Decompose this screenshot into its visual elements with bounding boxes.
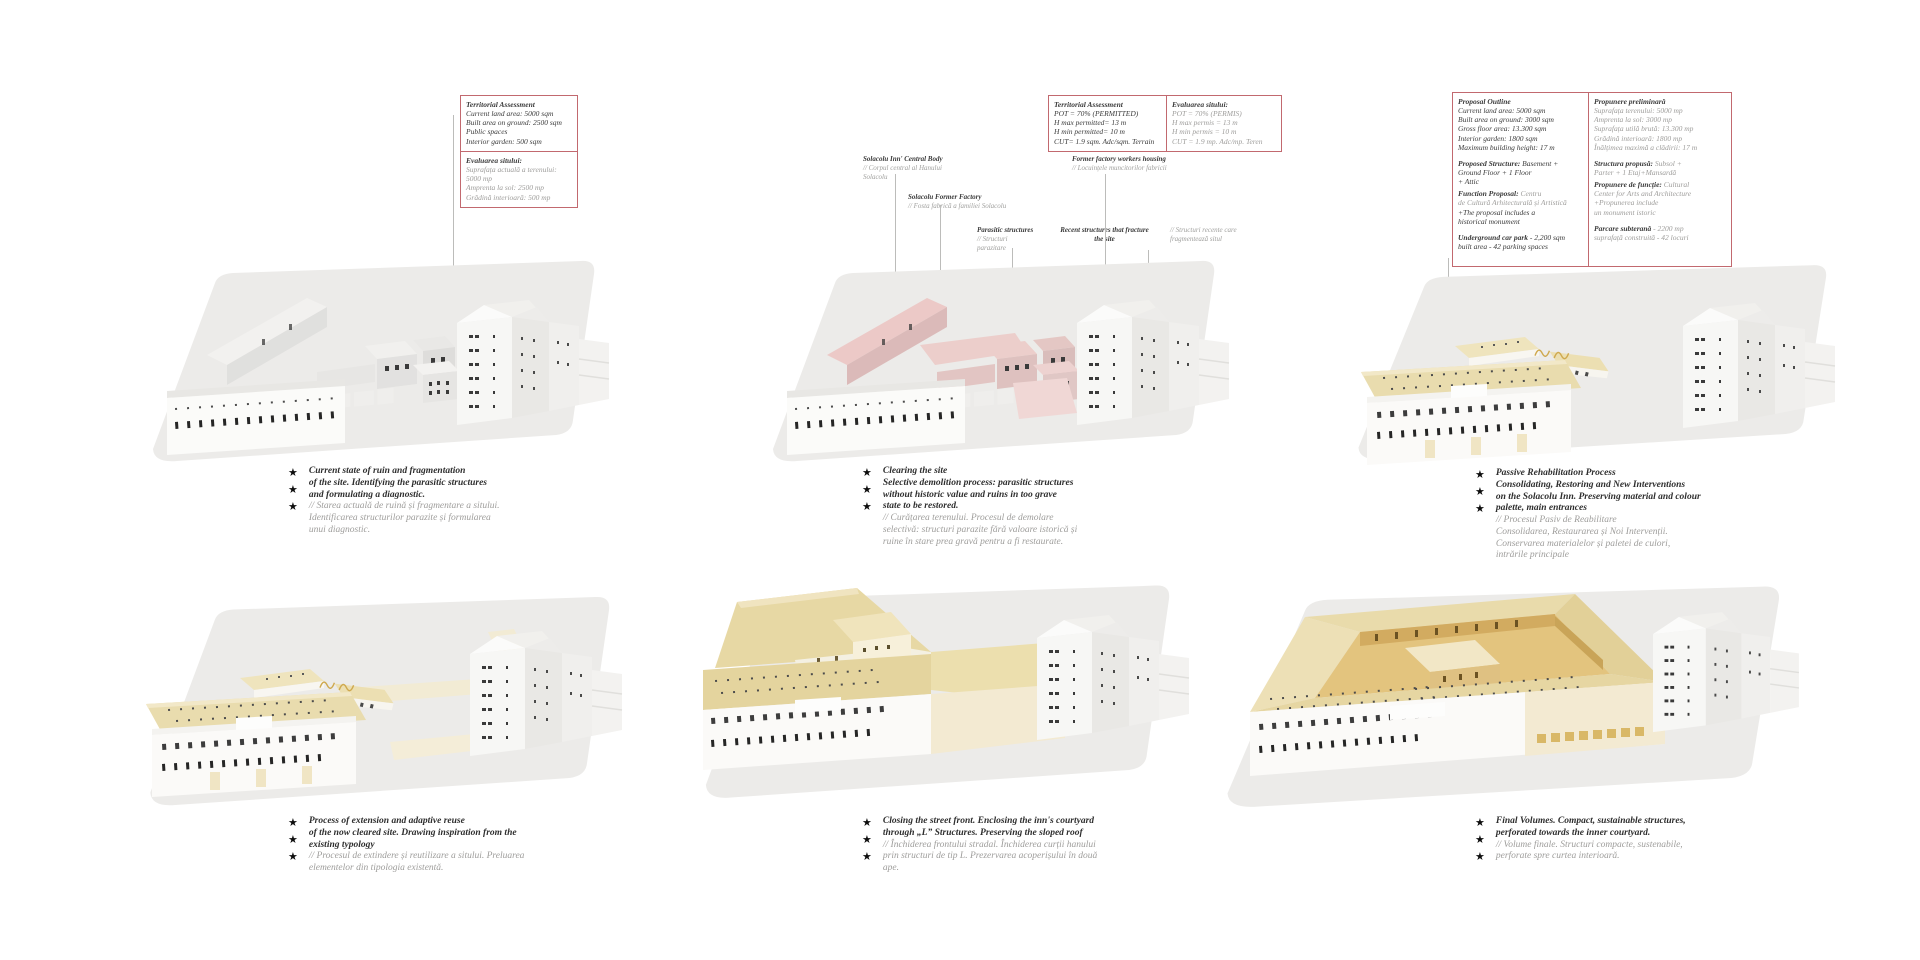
- phase-2-caption: ★ ★ ★ Clearing the site Selective demoli…: [862, 466, 1077, 548]
- star-icon: ★: [1475, 852, 1485, 863]
- caption-romanian: // Volume finale. Structuri compacte, su…: [1496, 840, 1686, 864]
- box-title: Evaluarea sitului:: [1172, 100, 1276, 109]
- box-title: Territorial Assessment: [466, 100, 572, 109]
- box-block: Propunere de funcție: Cultural Center fo…: [1594, 180, 1726, 217]
- star-icon: ★: [288, 852, 298, 863]
- star-bullets: ★ ★ ★: [862, 466, 872, 548]
- box-block: Function Proposal: Centru de Cultură Arh…: [1458, 189, 1586, 226]
- axonometric-model-phase-1-ruins: [95, 235, 635, 485]
- box-title: Evaluarea sitului:: [466, 156, 572, 165]
- star-icon: ★: [862, 468, 872, 479]
- phase-5-caption: ★ ★ ★ Closing the street front. Enclosin…: [862, 816, 1097, 875]
- star-icon: ★: [862, 818, 872, 829]
- caption-romanian: // Starea actuală de ruină și fragmentar…: [309, 501, 500, 536]
- star-icon: ★: [1475, 504, 1485, 515]
- phase-6-caption: ★ ★ ★ Final Volumes. Compact, sustainabl…: [1475, 816, 1686, 863]
- star-icon: ★: [288, 502, 298, 513]
- solacolu-inn-phasing-board: Territorial Assessment Current land area…: [0, 0, 1920, 960]
- star-icon: ★: [288, 835, 298, 846]
- phase-4-caption: ★ ★ ★ Process of extension and adaptive …: [288, 816, 524, 875]
- star-icon: ★: [862, 852, 872, 863]
- star-bullets: ★ ★ ★: [1475, 816, 1485, 863]
- star-icon: ★: [288, 468, 298, 479]
- caption-romanian: // Închiderea frontului stradal. Închide…: [883, 840, 1097, 875]
- star-icon: ★: [1475, 818, 1485, 829]
- site-evaluation-box-ro-2: Evaluarea sitului: POT = 70% (PERMIS) H …: [1166, 95, 1282, 152]
- star-icon: ★: [862, 502, 872, 513]
- caption-romanian: // Procesul de extindere și reutilizare …: [309, 851, 525, 875]
- star-bullets: ★ ★ ★: [862, 816, 872, 875]
- box-body: Current land area: 5000 sqm Built area o…: [466, 109, 572, 146]
- axonometric-model-phase-4-extension: [90, 570, 650, 825]
- star-icon: ★: [1475, 487, 1485, 498]
- callout-central-body: Solacolu Inn' Central Body // Corpul cen…: [863, 155, 968, 182]
- caption-english: Current state of ruin and fragmentation …: [309, 466, 500, 501]
- site-evaluation-box-ro-1: Evaluarea sitului: Suprafața actuală a t…: [460, 151, 578, 208]
- box-title: Propunere preliminară: [1594, 97, 1726, 106]
- box-block: Proposed Structure: Basement + Ground Fl…: [1458, 159, 1586, 186]
- callout-former-factory: Solacolu Former Factory // Fosta fabrică…: [908, 193, 1028, 211]
- star-icon: ★: [1475, 835, 1485, 846]
- box-body: POT = 70% (PERMITTED) H max permitted= 1…: [1054, 109, 1164, 146]
- callout-workers-housing: Former factory workers housing // Locuin…: [1072, 155, 1192, 173]
- box-title: Proposal Outline: [1458, 97, 1586, 106]
- box-body: POT = 70% (PERMIS) H max permis = 13 m H…: [1172, 109, 1276, 146]
- star-icon: ★: [862, 835, 872, 846]
- axonometric-model-phase-6-final-volumes: [1155, 552, 1845, 824]
- territorial-assessment-box-en-1: Territorial Assessment Current land area…: [460, 95, 578, 152]
- star-icon: ★: [288, 485, 298, 496]
- box-title: Territorial Assessment: [1054, 100, 1164, 109]
- caption-romanian: // Curățarea terenului. Procesul de demo…: [883, 513, 1077, 548]
- star-bullets: ★ ★ ★: [288, 816, 298, 875]
- caption-english: Closing the street front. Enclosing the …: [883, 816, 1097, 840]
- box-block: Structura propusă: Subsol + Parter + 1 E…: [1594, 159, 1726, 177]
- axonometric-model-phase-3-rehabilitation: [1305, 240, 1865, 480]
- star-icon: ★: [862, 485, 872, 496]
- box-body: Current land area: 5000 sqm Built area o…: [1458, 106, 1586, 152]
- star-icon: ★: [288, 818, 298, 829]
- phase-1-caption: ★ ★ ★ Current state of ruin and fragment…: [288, 466, 499, 537]
- territorial-assessment-box-en-2: Territorial Assessment POT = 70% (PERMIT…: [1048, 95, 1170, 152]
- caption-english: Passive Rehabilitation Process Consolida…: [1496, 468, 1701, 515]
- box-body: Suprafața terenului: 5000 mp Amprenta la…: [1594, 106, 1726, 152]
- caption-english: Clearing the site Selective demolition p…: [883, 466, 1077, 513]
- star-bullets: ★ ★ ★: [1475, 468, 1485, 562]
- star-icon: ★: [1475, 470, 1485, 481]
- axonometric-model-phase-2-demolition: [715, 235, 1255, 485]
- box-body: Suprafața actuală a terenului: 5000 mp A…: [466, 165, 572, 202]
- phase-3-caption: ★ ★ ★ Passive Rehabilitation Process Con…: [1475, 468, 1701, 562]
- caption-english: Process of extension and adaptive reuse …: [309, 816, 525, 851]
- caption-english: Final Volumes. Compact, sustainable stru…: [1496, 816, 1686, 840]
- star-bullets: ★ ★ ★: [288, 466, 298, 537]
- axonometric-model-phase-5-street-front: [645, 558, 1205, 820]
